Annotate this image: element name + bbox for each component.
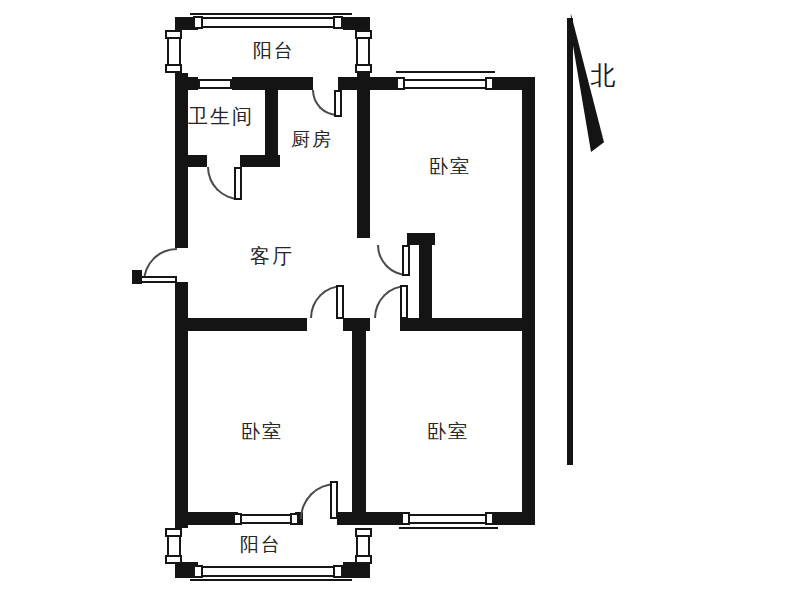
balcony-bottom-side-window-right-cap [355,555,372,564]
bedroom-top-right-window-cap [485,77,494,90]
kitchen-balcony-door-leaf [334,90,342,117]
bedroom-top-right-door-leaf [402,245,410,276]
wall-segment [343,562,370,578]
bedroom-bottom-left-window [238,514,295,524]
bathroom-window [198,79,232,89]
balcony-bottom-window-cap [333,565,343,578]
balcony-bottom-window [198,566,343,577]
balcony-bottom-window-sill-line [190,579,352,581]
wall-segment [352,325,366,518]
bedroom-bottom-right-window-sill-line [399,527,498,529]
north-arrow-staff [567,18,573,465]
bathroom-door-leaf [234,167,242,200]
wall-segment [175,90,188,248]
bedroom-bottom-right-door-leaf [400,285,408,319]
wall-segment [232,77,313,90]
room-label-kitchen: 厨房 [291,130,333,149]
north-label: 北 [591,63,616,88]
wall-segment [183,155,207,167]
wall-segment [343,17,370,30]
room-label-balcony-bottom: 阳台 [240,535,282,554]
balcony-top-side-window-left-cap [165,64,182,73]
bedroom-bottom-left-door-leaf [336,285,344,319]
wall-segment [240,155,280,167]
room-label-bedroom-top-right: 卧室 [429,157,471,176]
balcony-top-window-sill-line [190,13,352,15]
wall-segment [522,77,535,520]
wall-segment [183,318,307,331]
balcony-bottom-side-window-left-cap [165,555,182,564]
wall-segment [175,77,198,90]
bedroom-bottom-right-window [405,514,490,524]
bedroom-top-right-window [400,79,490,89]
room-label-living-room: 客厅 [250,246,294,266]
balcony-bottom-side-window-right-cap [355,528,372,537]
balcony-top-window [198,17,343,28]
wall-segment [265,90,278,162]
wall-segment [175,512,188,528]
wall-segment [175,282,188,512]
room-label-bedroom-bottom-right: 卧室 [427,422,469,441]
bedroom-bottom-left-window-cap [290,513,299,525]
balcony-bottom-door-leaf [330,481,338,519]
balcony-top-window-cap [333,16,343,29]
bedroom-bottom-right-window-cap [485,512,494,525]
bedroom-top-right-window-sill-line [396,71,495,73]
bedroom-top-right-window-cap [396,77,405,90]
room-label-bathroom: 卫生间 [188,106,254,126]
balcony-bottom-side-window-left-cap [165,528,182,537]
balcony-top-side-window-left-cap [165,30,182,39]
balcony-bottom-window-cap [193,565,203,578]
bedroom-bottom-left-window-cap [233,513,242,525]
entrance-door-leaf [140,276,177,283]
wall-segment [419,233,432,330]
wall-segment [337,512,405,525]
room-label-bedroom-bottom-left: 卧室 [241,422,283,441]
balcony-top-side-window-right-cap [355,30,372,39]
entrance-door-cap [132,270,142,284]
wall-segment [400,318,522,331]
bedroom-bottom-right-window-cap [401,512,410,525]
wall-segment [338,77,400,90]
balcony-top-window-cap [193,16,203,29]
wall-segment [357,90,370,238]
wall-segment [490,512,535,525]
wall-segment [183,512,238,525]
floor-plan: 阳台卫生间厨房卧室客厅卧室卧室阳台北 [0,0,800,600]
room-label-balcony-top: 阳台 [253,41,295,60]
balcony-top-side-window-right-cap [355,64,372,73]
